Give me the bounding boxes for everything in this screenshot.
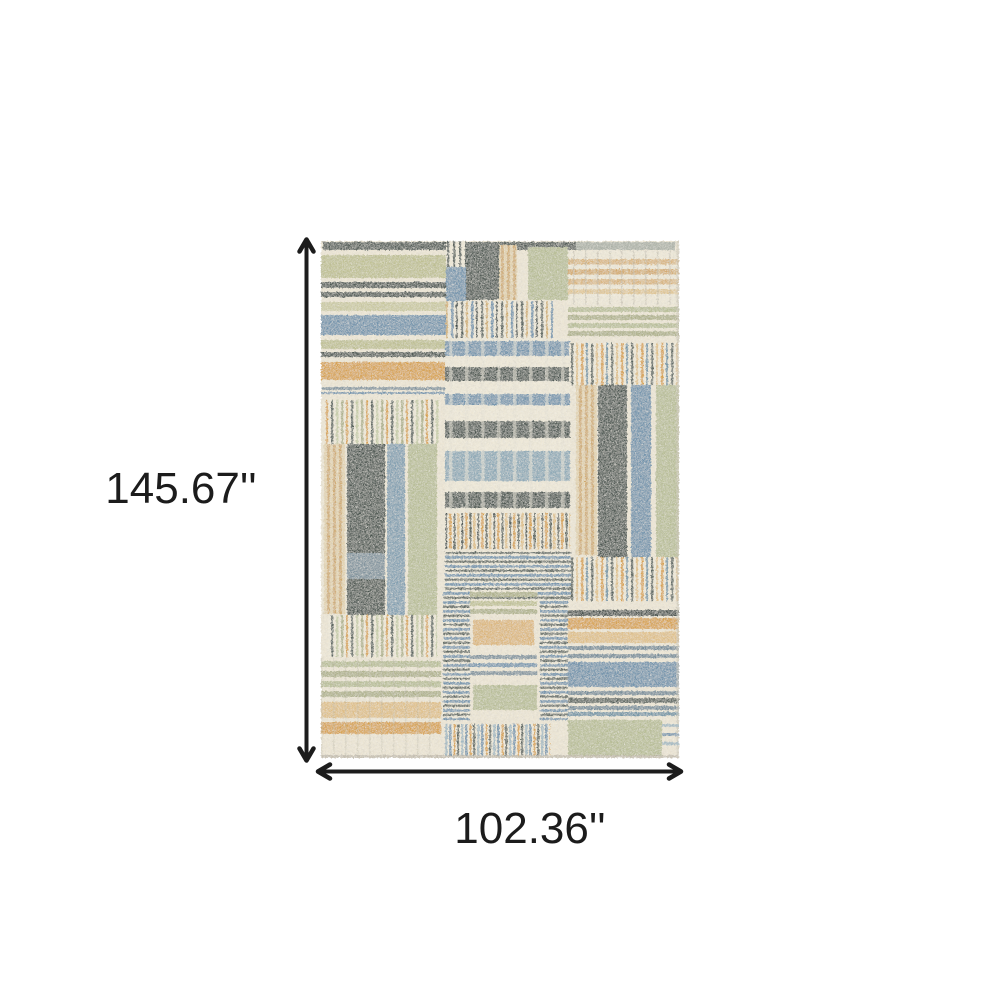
svg-text:145.67'': 145.67'' — [105, 464, 256, 513]
svg-text:102.36'': 102.36'' — [454, 804, 605, 853]
